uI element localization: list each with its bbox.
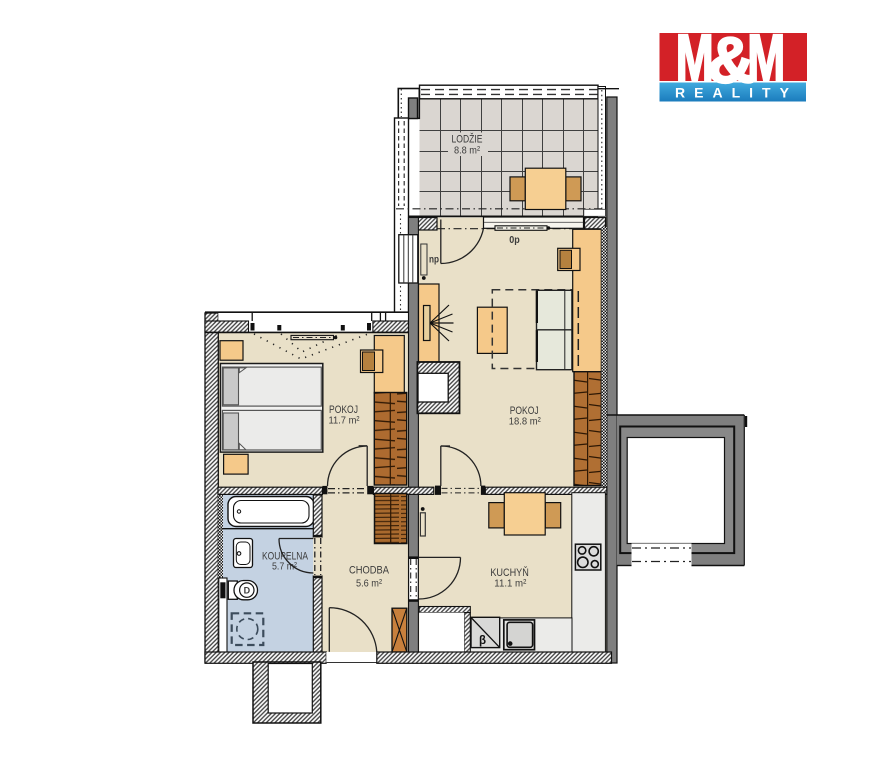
svg-text:POKOJ: POKOJ <box>510 405 539 417</box>
svg-text:β: β <box>479 635 486 647</box>
svg-text:11.1 m²: 11.1 m² <box>494 579 527 590</box>
svg-text:0p: 0p <box>509 235 520 246</box>
svg-text:CHODBA: CHODBA <box>349 565 390 577</box>
svg-text:KUCHYŇ: KUCHYŇ <box>490 566 529 579</box>
svg-text:POKOJ: POKOJ <box>329 404 358 416</box>
svg-text:8.8 m²: 8.8 m² <box>454 146 481 157</box>
svg-text:LODŽIE: LODŽIE <box>452 133 483 146</box>
svg-text:D: D <box>244 586 251 596</box>
svg-text:REALITY: REALITY <box>675 84 798 100</box>
svg-text:18.8 m²: 18.8 m² <box>509 417 542 428</box>
svg-text:5.6 m²: 5.6 m² <box>356 579 383 590</box>
svg-text:11.7 m²: 11.7 m² <box>329 416 361 427</box>
svg-text:np: np <box>429 254 439 265</box>
